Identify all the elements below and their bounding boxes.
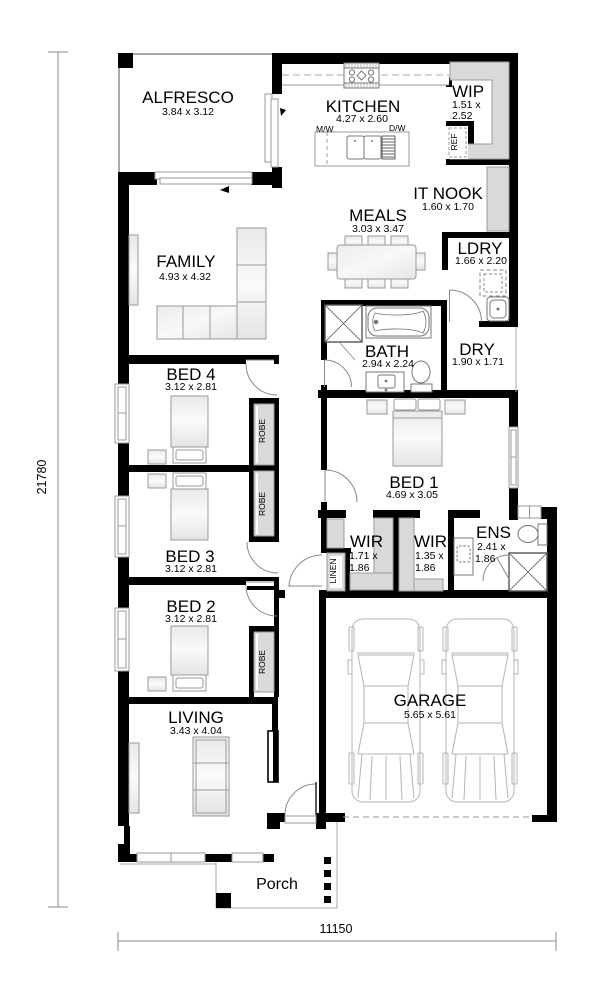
svg-text:11150: 11150 (320, 922, 353, 936)
svg-text:REF: REF (449, 134, 459, 151)
svg-text:Porch: Porch (256, 876, 298, 893)
svg-text:2.94 x 2.24: 2.94 x 2.24 (362, 358, 414, 370)
svg-text:4.27 x 2.60: 4.27 x 2.60 (336, 113, 388, 125)
svg-text:WIR: WIR (350, 532, 383, 551)
svg-text:D/W: D/W (389, 123, 406, 133)
svg-text:3.12 x 2.81: 3.12 x 2.81 (165, 613, 217, 625)
svg-text:4.69 x 3.05: 4.69 x 3.05 (386, 489, 438, 501)
svg-text:ENS: ENS (476, 523, 511, 542)
svg-text:FAMILY: FAMILY (156, 252, 215, 271)
svg-text:3.03 x 3.47: 3.03 x 3.47 (352, 223, 404, 235)
svg-text:ROBE: ROBE (257, 650, 267, 674)
svg-text:1.60 x 1.70: 1.60 x 1.70 (422, 201, 474, 213)
svg-text:4.93 x 4.32: 4.93 x 4.32 (159, 271, 211, 283)
svg-text:3.43 x 4.04: 3.43 x 4.04 (170, 725, 222, 737)
svg-text:3.12 x 2.81: 3.12 x 2.81 (165, 381, 217, 393)
svg-text:1.86: 1.86 (475, 553, 496, 565)
svg-text:3.84 x 3.12: 3.84 x 3.12 (162, 106, 214, 118)
svg-text:21780: 21780 (35, 460, 49, 495)
svg-text:1.90 x 1.71: 1.90 x 1.71 (452, 356, 504, 368)
svg-text:2.52: 2.52 (452, 110, 473, 122)
svg-text:2.41 x: 2.41 x (477, 541, 506, 553)
svg-text:M/W: M/W (316, 124, 333, 134)
svg-text:1.86: 1.86 (415, 562, 436, 574)
svg-text:GARAGE: GARAGE (394, 691, 467, 710)
svg-text:5.65 x 5.61: 5.65 x 5.61 (404, 709, 456, 721)
svg-text:ROBE: ROBE (257, 419, 267, 443)
svg-text:WIR: WIR (414, 532, 447, 551)
svg-text:1.66 x 2.20: 1.66 x 2.20 (455, 255, 507, 267)
svg-text:ALFRESCO: ALFRESCO (142, 88, 234, 107)
svg-text:ROBE: ROBE (257, 492, 267, 516)
svg-text:3.12 x 2.81: 3.12 x 2.81 (165, 563, 217, 575)
svg-text:1.86: 1.86 (349, 562, 370, 574)
svg-text:1.35 x: 1.35 x (415, 550, 444, 562)
svg-text:LINEN: LINEN (328, 558, 338, 583)
svg-text:1.71 x: 1.71 x (349, 550, 378, 562)
